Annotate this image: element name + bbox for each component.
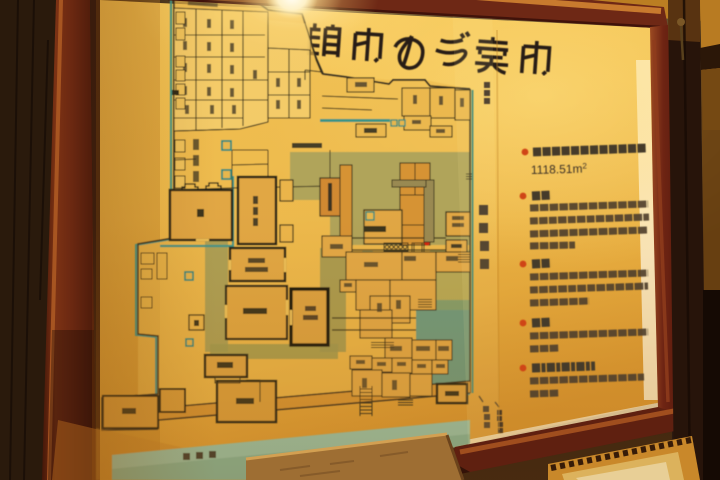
svg-text:1118.51m2: 1118.51m2 xyxy=(531,162,588,177)
